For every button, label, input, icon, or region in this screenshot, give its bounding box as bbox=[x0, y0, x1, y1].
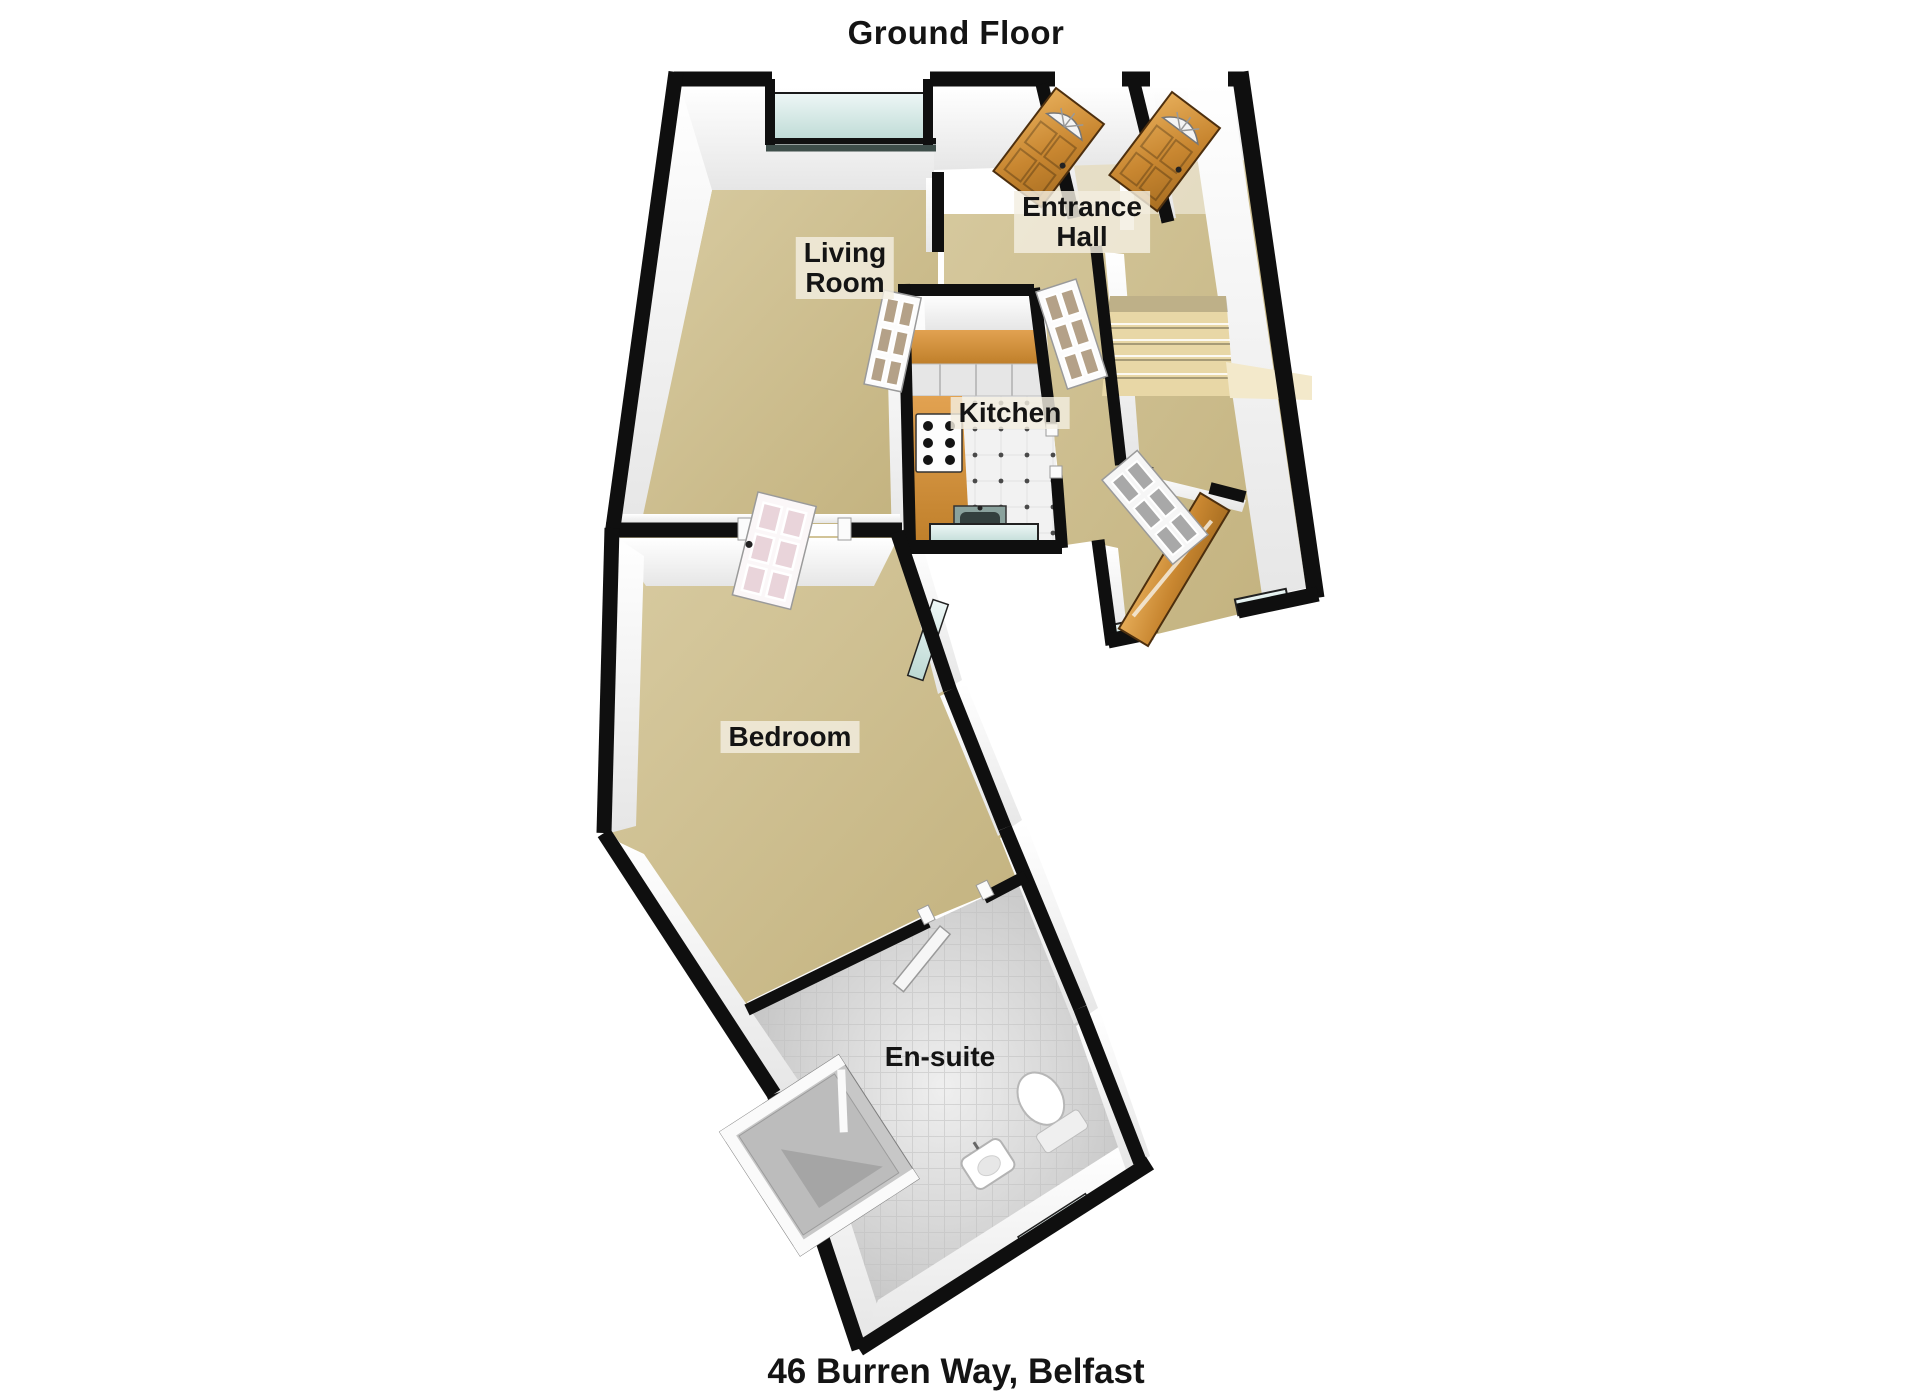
floor-plan-page: Ground Floor Living Room Entrance Hall K… bbox=[0, 0, 1920, 1396]
address-caption: 46 Burren Way, Belfast bbox=[767, 1352, 1144, 1392]
floor-plan-drawing bbox=[0, 0, 1920, 1396]
living-room-label: Living Room bbox=[796, 237, 894, 299]
bay-window bbox=[766, 93, 936, 148]
ensuite-label: En-suite bbox=[877, 1041, 1003, 1073]
page-title: Ground Floor bbox=[848, 14, 1065, 52]
entrance-hall-label: Entrance Hall bbox=[1014, 191, 1150, 253]
kitchen-label: Kitchen bbox=[951, 397, 1070, 429]
bedroom-label: Bedroom bbox=[721, 721, 860, 753]
